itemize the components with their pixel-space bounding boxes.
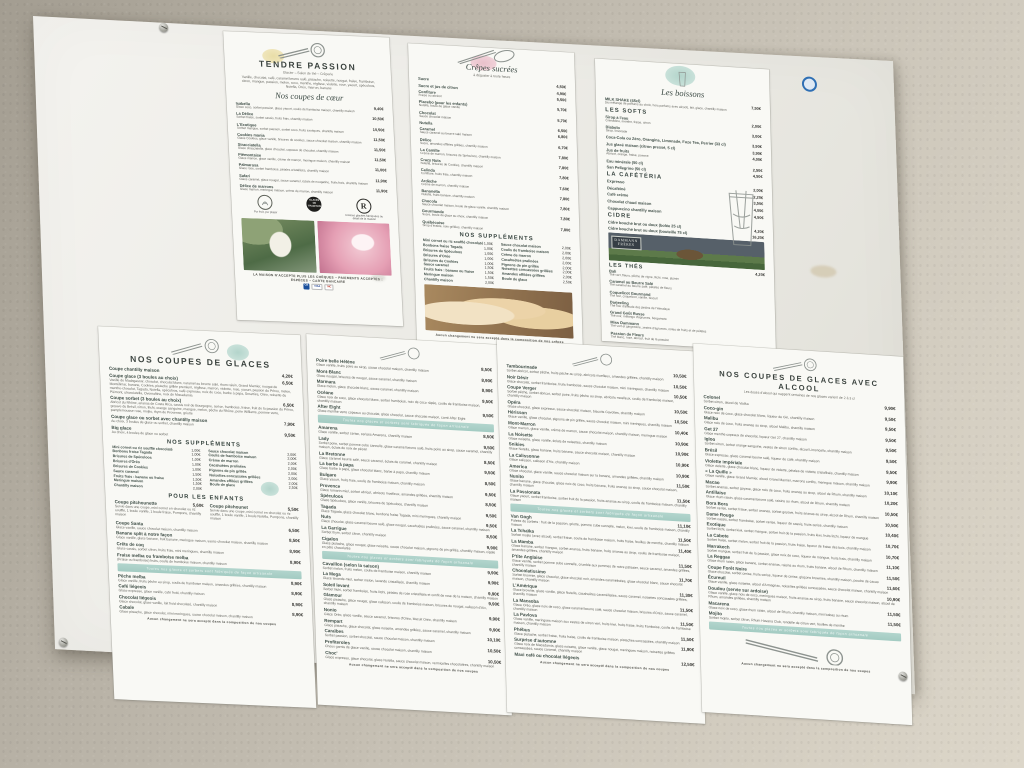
badge-artisan-r: R Crèmes glacées fabriquées au détail de… — [341, 197, 386, 221]
dammann-freres-logo: DAMMANNFRÈRES — [611, 236, 641, 251]
panel-coupes-alcool: NOS COUPES DE GLACES AVEC ALCOOL Les dos… — [693, 344, 912, 726]
alcool-list: Colonel9,90€Sorbet citron, alcool de Vod… — [703, 394, 901, 632]
photo-sundae-garden — [241, 218, 316, 273]
supplements-columns: Mini cornet ou riz soufflé chocolaté1,00… — [423, 238, 572, 290]
softs-list: Sirop à l'eau2,00€Grenadine, menthe, fra… — [605, 114, 762, 179]
coeur-item-list: Isabella9,40€Glace coco, sorbet passion,… — [236, 101, 388, 197]
panel-tendre-passion: TENDRE PASSION Glacier – Salon de thé – … — [223, 31, 403, 326]
panel-coupes-2: Poire belle Hélène8,50€Glace vanille, fr… — [306, 334, 512, 715]
screw-top-left — [159, 23, 168, 32]
whisk-icon — [454, 44, 519, 73]
screw-bottom-right — [898, 671, 907, 680]
quality-badges: Pur fruit, pur plaisir GLACES DE TRADITI… — [240, 193, 389, 221]
menu-item: Coupe pitchounette5,60€Servie dans une c… — [115, 499, 205, 520]
menu-board: TENDRE PASSION Glacier – Salon de thé – … — [33, 16, 915, 694]
photo-crepes — [424, 284, 573, 339]
wall-photo: { "shared": { "note_coupes": "Aucun chan… — [0, 0, 1024, 768]
panel-coupes-glaces: NOS COUPES DE GLACES Coupe chantilly mai… — [98, 326, 316, 708]
menu-item: Coupe pitchounet5,50€Servie dans une cou… — [210, 503, 300, 524]
panel-boissons: Les boissons MILK SHAKE (45cl) 7,50€ (au… — [595, 59, 776, 352]
tea-list: BaliThé vert, fleurs, pêche de vigne, li… — [609, 268, 768, 351]
visa-icon: VISA — [312, 284, 323, 290]
mastercard-icon: MC — [325, 284, 334, 290]
coupes-list-2: Poire belle Hélène8,50€Glace vanille, fr… — [316, 358, 501, 669]
supplement-column-left: Mini cornet ou riz soufflé chocolaté1,00… — [423, 238, 494, 286]
tall-glass-drawing — [724, 187, 760, 256]
crepes-item-list: Sucre4,50€Sucre et jus de citron4,90€Con… — [418, 76, 571, 236]
panel-crepes-sucrees: Crêpes sucrées à déguster à toute heure … — [408, 43, 583, 351]
supplement-column-right: Sauce chocolat maison2,00€Coulis de fram… — [501, 243, 572, 291]
coupes-list-3: Tambourinade10,50€Sorbet abricot, sorbet… — [506, 363, 694, 667]
badge-fruit: Pur fruit, pur plaisir — [243, 194, 288, 215]
stain-mark — [810, 265, 836, 278]
coupes-base-list: Coupe chantilly maison4,20€Coupe glace (… — [109, 366, 296, 442]
badge-tradition: GLACES DE TRADITION — [292, 195, 337, 212]
supplements-columns: Mini cornet ou riz soufflé chocolaté1,00… — [112, 444, 298, 496]
panel-coupes-3: Tambourinade10,50€Sorbet abricot, sorbet… — [497, 340, 705, 724]
cb-icon: CB — [303, 283, 310, 289]
supplement-column-left: Mini cornet ou riz soufflé chocolaté1,00… — [112, 444, 202, 492]
photo-pink-dessert — [317, 221, 392, 276]
supplement-column-right: Sauce chocolat maison2,00€Coulis de fram… — [208, 449, 298, 497]
classic-coupes-list: Coupe Santa6,50€Glace vanille, sauce cho… — [116, 520, 304, 622]
screw-bottom-left — [59, 637, 68, 646]
blue-round-sticker — [802, 76, 818, 92]
dessert-photos — [241, 218, 391, 276]
